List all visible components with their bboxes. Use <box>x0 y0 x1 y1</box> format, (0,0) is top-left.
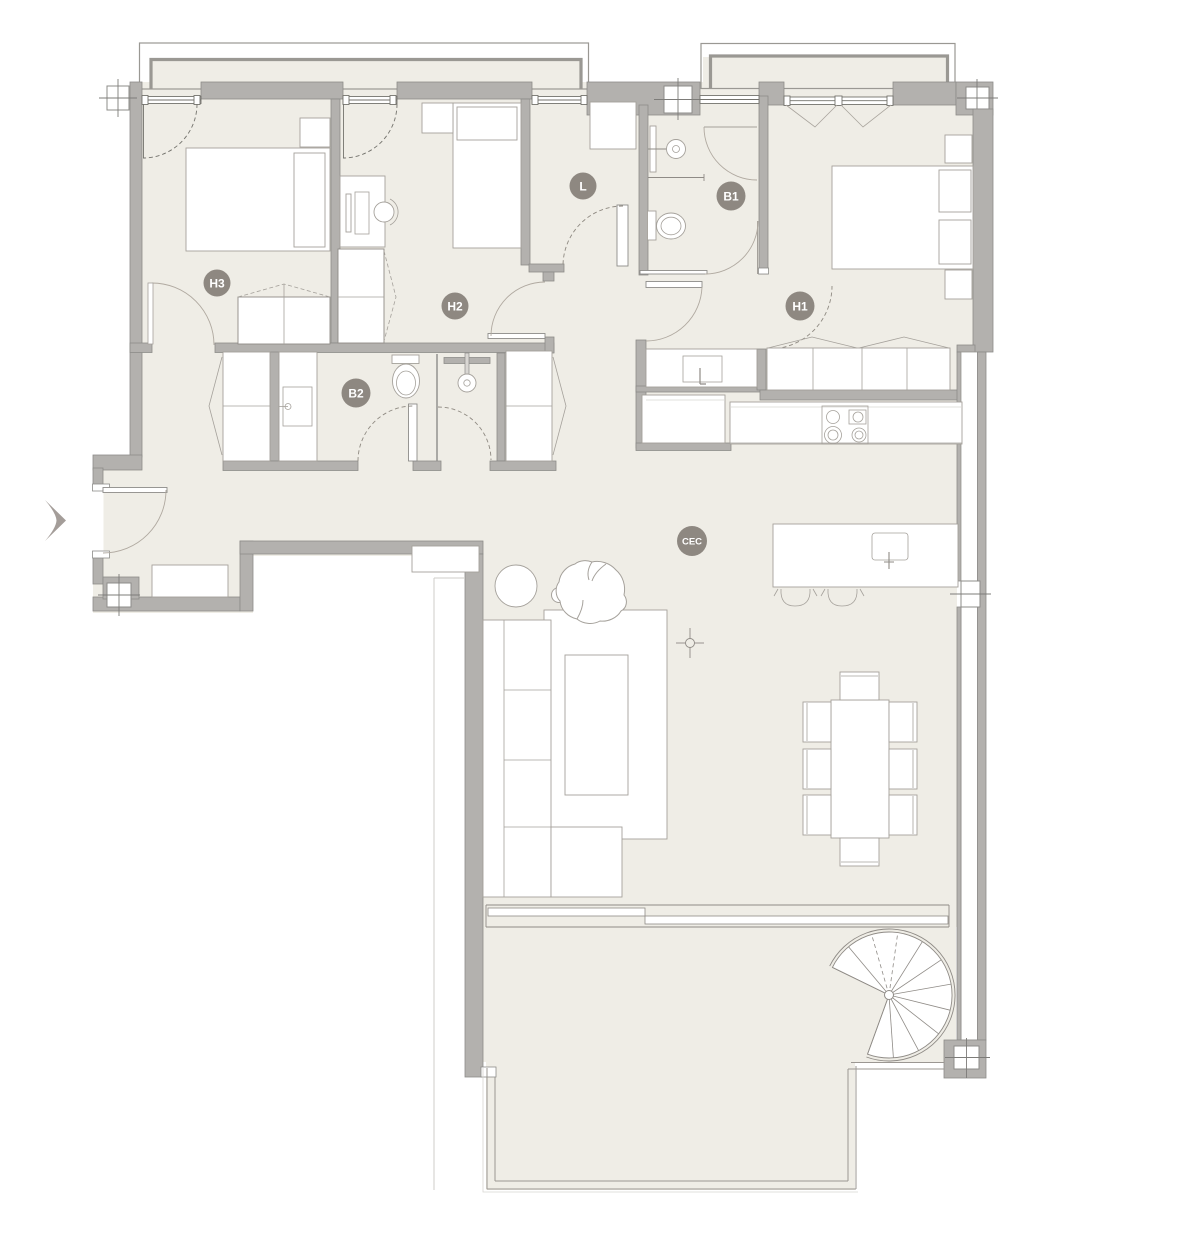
svg-text:CEC: CEC <box>682 537 702 548</box>
svg-text:H1: H1 <box>792 300 808 314</box>
svg-text:B2: B2 <box>348 387 364 401</box>
svg-text:H3: H3 <box>209 277 225 291</box>
svg-text:H2: H2 <box>447 300 463 314</box>
svg-text:B1: B1 <box>723 190 739 204</box>
svg-text:L: L <box>579 180 586 194</box>
